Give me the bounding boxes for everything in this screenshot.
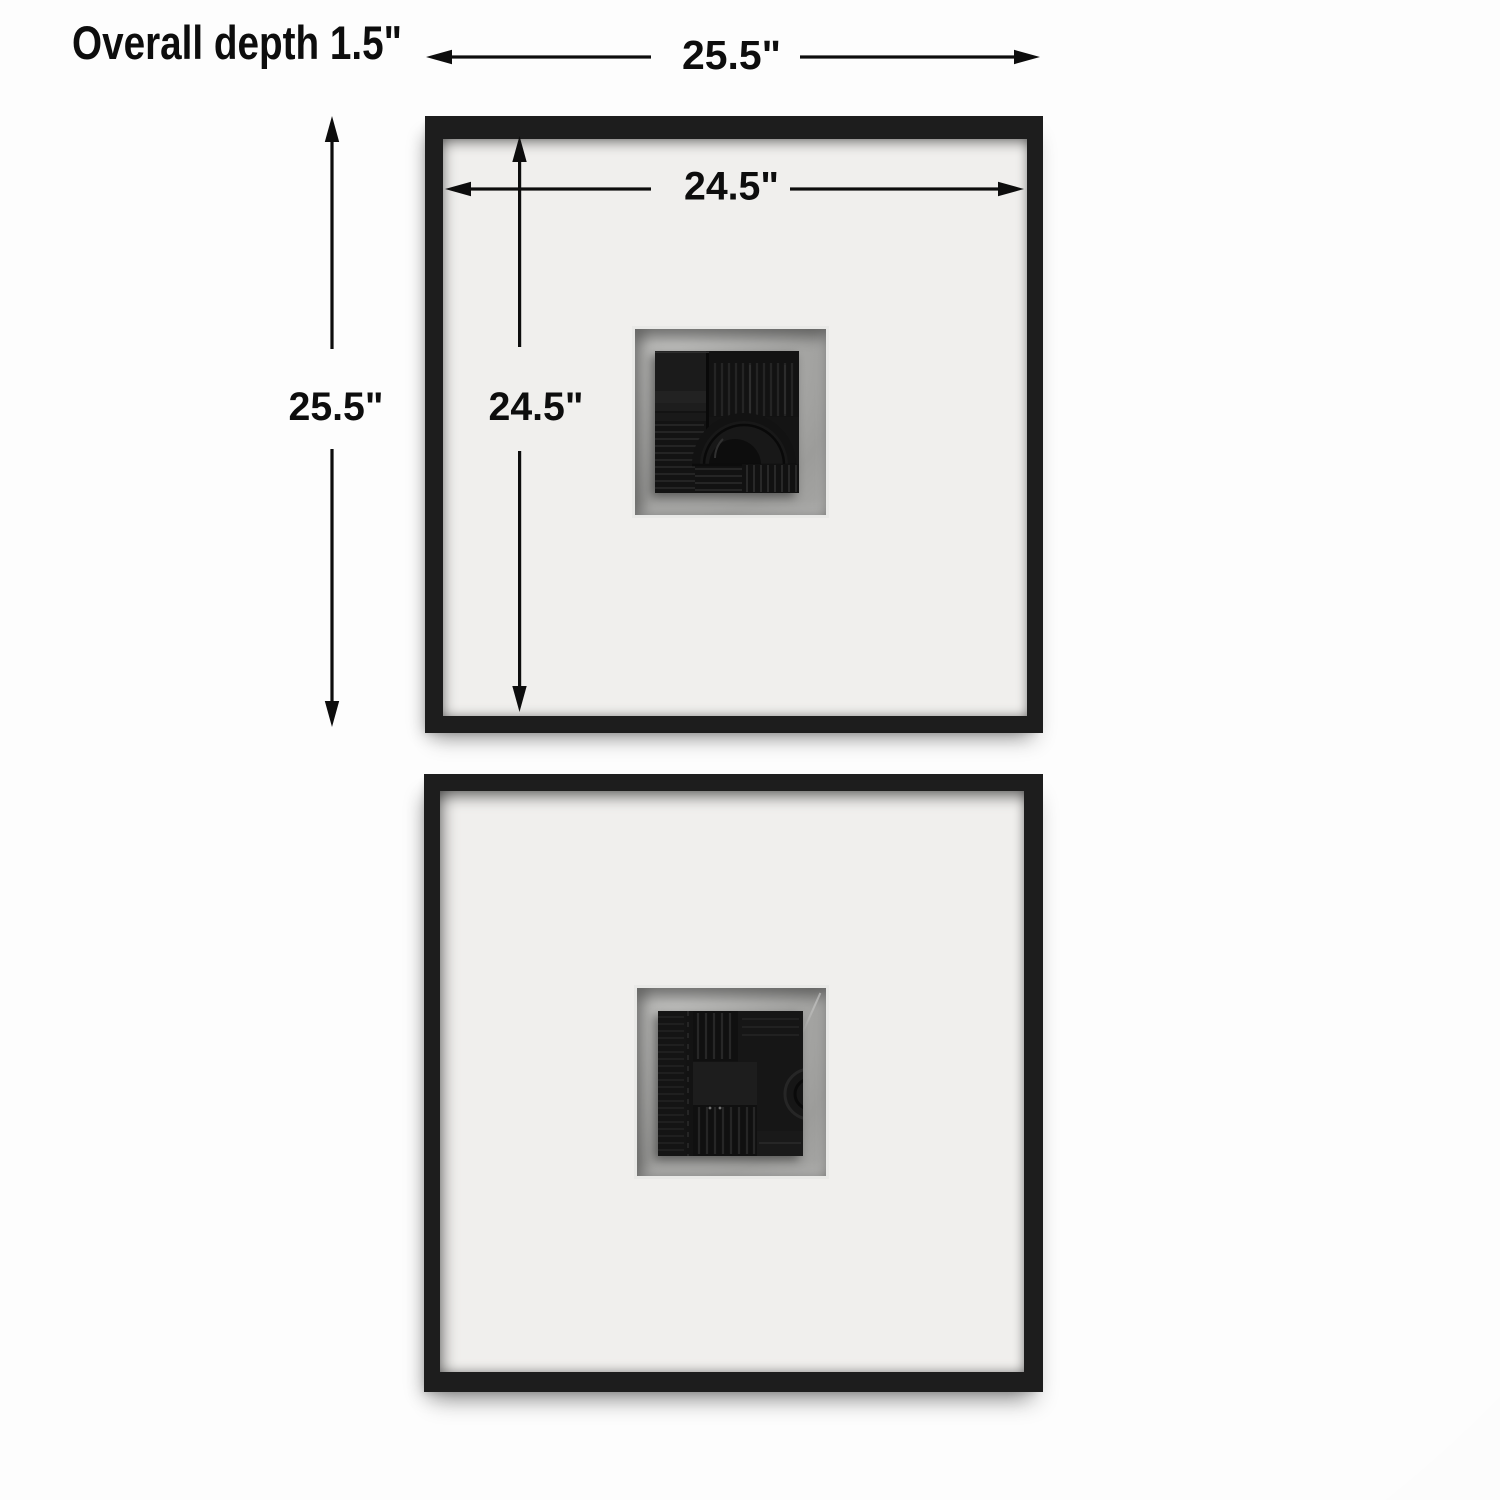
svg-text:25.5": 25.5" [682, 32, 781, 78]
svg-text:24.5": 24.5" [489, 385, 584, 429]
svg-text:Overall depth 1.5": Overall depth 1.5" [72, 16, 402, 69]
svg-text:24.5": 24.5" [684, 165, 779, 209]
svg-text:25.5": 25.5" [289, 385, 384, 429]
